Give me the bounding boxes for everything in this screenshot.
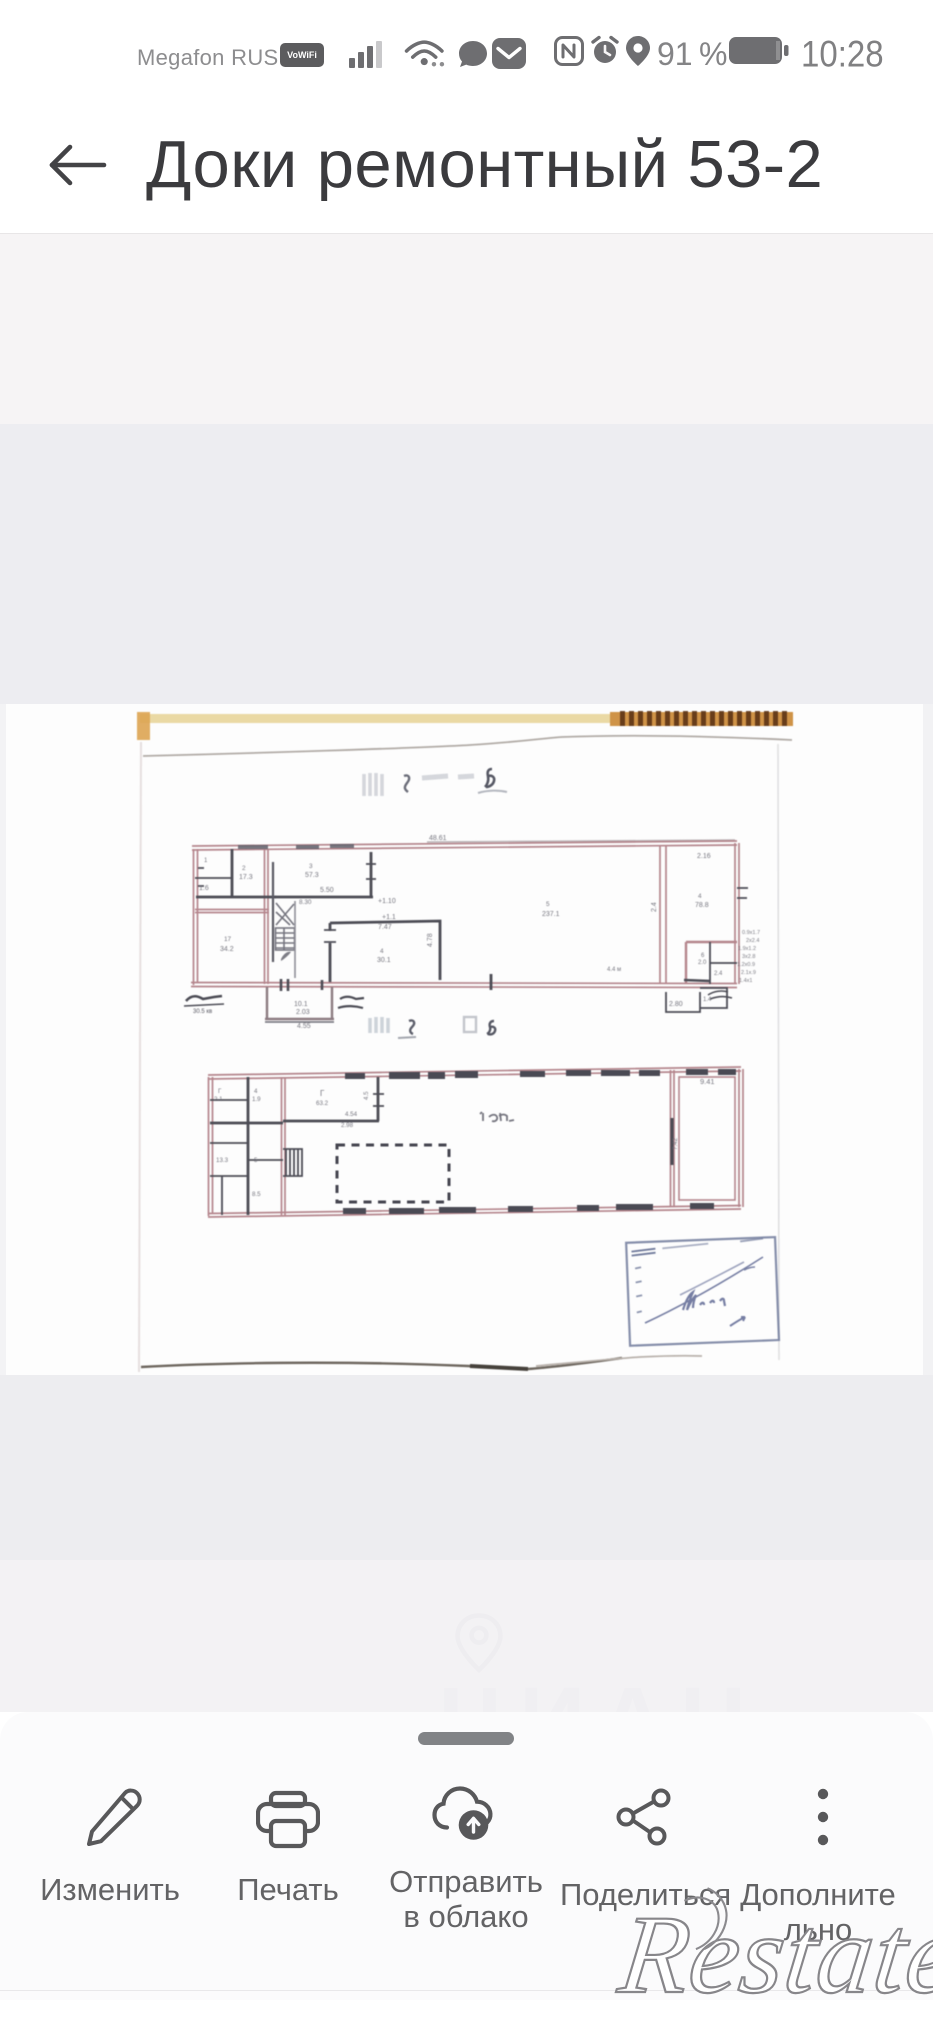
- svg-text:48.61: 48.61: [429, 835, 447, 842]
- svg-text:+1.1: +1.1: [382, 914, 396, 921]
- svg-text:78.8: 78.8: [695, 902, 709, 909]
- svg-text:1.2х0.9: 1.2х0.9: [737, 962, 755, 968]
- svg-text:4: 4: [254, 1088, 258, 1095]
- svg-text:4.55: 4.55: [297, 1023, 311, 1030]
- svg-text:5.50: 5.50: [320, 887, 334, 894]
- svg-text:8.30: 8.30: [299, 899, 312, 906]
- svg-text:1.9х1.2: 1.9х1.2: [738, 946, 756, 952]
- svg-text:13.3: 13.3: [216, 1157, 229, 1164]
- svg-text:0.9х1.7: 0.9х1.7: [742, 930, 760, 936]
- svg-text:2.03: 2.03: [296, 1009, 310, 1016]
- svg-text:2.4: 2.4: [651, 902, 658, 912]
- svg-text:4: 4: [380, 948, 384, 955]
- svg-text:17.3: 17.3: [239, 874, 253, 881]
- svg-text:4: 4: [698, 893, 702, 900]
- svg-text:2.98: 2.98: [341, 1122, 354, 1129]
- svg-text:3: 3: [309, 863, 313, 870]
- svg-text:7.42: 7.42: [672, 1137, 679, 1150]
- svg-text:10.1: 10.1: [294, 1001, 308, 1008]
- svg-text:8.5: 8.5: [252, 1191, 261, 1198]
- svg-text:237.1: 237.1: [542, 911, 560, 918]
- svg-text:1.4х1: 1.4х1: [739, 978, 752, 984]
- svg-text:4.4 м: 4.4 м: [607, 967, 621, 973]
- svg-text:2.80: 2.80: [669, 1001, 683, 1008]
- svg-text:57.3: 57.3: [305, 872, 319, 879]
- svg-text:6: 6: [701, 953, 705, 959]
- svg-text:1.9: 1.9: [252, 1096, 261, 1103]
- svg-text:2х2.4: 2х2.4: [746, 938, 759, 944]
- svg-text:Г: Г: [320, 1089, 325, 1098]
- svg-text:34.2: 34.2: [220, 946, 234, 953]
- svg-text:3х2.8: 3х2.8: [742, 954, 755, 960]
- svg-text:63.2: 63.2: [316, 1100, 329, 1107]
- svg-text:1.4: 1.4: [703, 997, 712, 1003]
- svg-text:4.5: 4.5: [363, 1091, 370, 1100]
- svg-text:4.54: 4.54: [345, 1111, 358, 1118]
- svg-text:1: 1: [204, 858, 208, 864]
- svg-text:2.1х.9: 2.1х.9: [741, 970, 756, 976]
- svg-text:9.41: 9.41: [700, 1077, 715, 1086]
- svg-text:Г: Г: [218, 1088, 222, 1095]
- svg-text:+1.10: +1.10: [378, 898, 396, 905]
- svg-text:30.5 кв: 30.5 кв: [193, 1009, 212, 1015]
- svg-text:1.6: 1.6: [199, 885, 209, 892]
- svg-text:2.0: 2.0: [698, 960, 707, 966]
- svg-text:2: 2: [242, 865, 246, 872]
- svg-text:5: 5: [546, 901, 550, 908]
- svg-text:4.78: 4.78: [427, 933, 434, 947]
- svg-text:17: 17: [224, 936, 232, 943]
- svg-text:30.1: 30.1: [377, 957, 391, 964]
- svg-text:2.1: 2.1: [214, 1096, 223, 1103]
- svg-text:2.4: 2.4: [714, 971, 723, 977]
- svg-text:5: 5: [254, 1157, 258, 1164]
- svg-text:7.47: 7.47: [378, 924, 392, 931]
- svg-text:2.16: 2.16: [697, 853, 711, 860]
